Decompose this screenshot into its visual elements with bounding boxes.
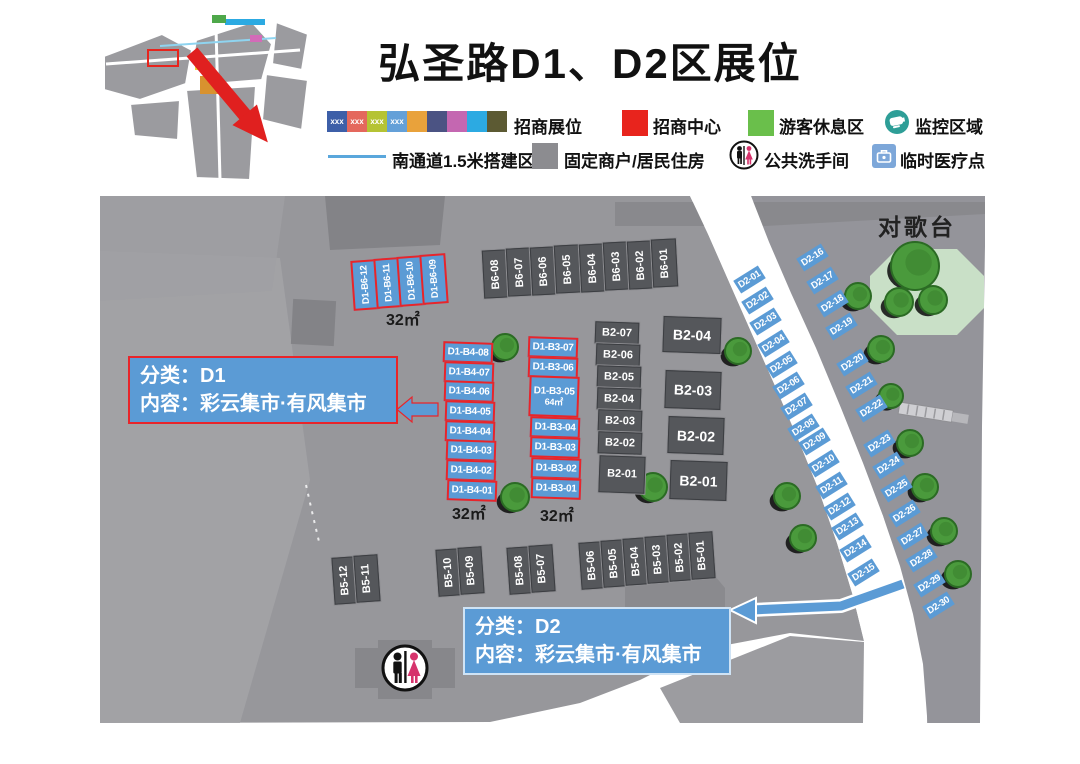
booth-label: D1-B3-02 <box>535 463 576 474</box>
booth-D2-21: D2-21 <box>845 371 878 399</box>
legend-booth-swatch: xxx <box>387 111 407 132</box>
class-box-d1: 分类：D1 内容：彩云集市·有风集市 <box>128 356 398 424</box>
booth-label: B6-02 <box>634 250 647 281</box>
page-title: 弘圣路D1、D2区展位 <box>320 30 860 91</box>
booth-D2-24: D2-24 <box>872 451 905 479</box>
booth-D2-26: D2-26 <box>888 499 921 527</box>
booth-label: D1-B3-05 <box>534 386 575 397</box>
booth-D2-27: D2-27 <box>896 522 929 550</box>
camera-icon <box>884 109 910 140</box>
booth-label: D2-07 <box>784 396 810 417</box>
booth-label: D2-17 <box>810 270 836 291</box>
booth-label: D2-18 <box>820 293 846 314</box>
legend-rest-label: 游客休息区 <box>779 113 864 138</box>
booth-label: D2-10 <box>811 453 837 474</box>
booth-B2-04: B2-04 <box>662 316 721 354</box>
booth-D2-25: D2-25 <box>880 474 913 502</box>
booth-label: B2-05 <box>604 371 634 383</box>
booth-B2-04: B2-04 <box>597 387 642 411</box>
booth-B2-05: B2-05 <box>597 365 642 389</box>
booth-label: B2-04 <box>673 327 712 342</box>
booth-B6-07: B6-07 <box>506 247 533 296</box>
booth-B2-02: B2-02 <box>598 431 643 455</box>
booth-label: D1-B3-03 <box>534 442 575 453</box>
booth-D1-B3-01: D1-B3-01 <box>531 477 582 500</box>
booth-label: D2-01 <box>737 269 763 290</box>
booth-label: D2-11 <box>819 475 844 496</box>
class-d2-line1: 分类：D2 <box>475 613 719 641</box>
booth-label: D2-24 <box>876 455 902 476</box>
booth-label: B5-01 <box>695 540 708 571</box>
booth-label: D1-B3-01 <box>535 483 576 494</box>
legend-center-label: 招商中心 <box>653 113 721 138</box>
booth-size-label: 64㎡ <box>545 397 563 407</box>
booth-label: D2-22 <box>859 398 885 419</box>
booth-B6-02: B6-02 <box>627 240 654 289</box>
booth-B2-02: B2-02 <box>667 416 724 455</box>
booth-label: D2-03 <box>753 311 779 332</box>
booth-label: D2-05 <box>769 354 795 375</box>
booth-label: D1-B4-08 <box>447 347 488 358</box>
booth-label: D2-04 <box>761 333 787 354</box>
legend-booth-swatch <box>487 111 507 132</box>
booth-label: B5-03 <box>651 544 664 575</box>
booth-B6-04: B6-04 <box>579 243 606 292</box>
booth-label: D2-23 <box>867 433 893 454</box>
booth-D2-16: D2-16 <box>796 243 829 271</box>
stage-label: 对歌台 <box>878 208 956 242</box>
booth-D1-B3-05: D1-B3-0564㎡ <box>528 375 579 418</box>
booth-label: B5-05 <box>607 548 620 579</box>
booth-label: D1-B6-10 <box>405 261 417 300</box>
booth-label: B5-09 <box>464 555 477 586</box>
class-d1-line1: 分类：D1 <box>140 362 386 390</box>
booth-label: D1-B6-12 <box>359 265 371 304</box>
booth-label: B6-07 <box>513 257 526 288</box>
booth-label: B6-04 <box>586 253 599 284</box>
area-size-label-d1b4: 32㎡ <box>452 500 486 524</box>
booth-D1-B4-01: D1-B4-01 <box>447 479 498 502</box>
booth-label: D2-26 <box>892 503 918 524</box>
booth-label: D2-30 <box>926 595 952 616</box>
booth-label: D2-28 <box>909 548 935 569</box>
booth-label: D2-16 <box>800 247 826 268</box>
booth-label: B6-03 <box>610 251 623 282</box>
booth-D2-30: D2-30 <box>922 591 955 619</box>
booth-map-poster: 弘圣路D1、D2区展位 xxxxxxxxxxxx 招商展位 招商中心 游客休息区… <box>0 0 1080 764</box>
medical-icon <box>872 144 896 173</box>
booth-label: B6-08 <box>489 259 502 290</box>
booth-label: D2-12 <box>827 496 853 517</box>
booth-color-swatches: xxxxxxxxxxxx <box>327 111 507 132</box>
booth-label: D1-B3-04 <box>534 422 575 433</box>
booth-label: B2-04 <box>604 393 634 405</box>
legend-booth-swatch: xxx <box>327 111 347 132</box>
legend-fixed-label: 固定商户/居民住房 <box>564 147 705 172</box>
class-box-d2: 分类：D2 内容：彩云集市·有风集市 <box>463 607 731 675</box>
booth-label: D2-15 <box>851 562 877 583</box>
legend-booth-swatch <box>467 111 487 132</box>
booth-label: D2-19 <box>829 316 855 337</box>
booth-D2-19: D2-19 <box>825 312 858 340</box>
booth-label: B5-06 <box>585 550 598 581</box>
booth-B6-01: B6-01 <box>651 238 678 287</box>
booth-B6-03: B6-03 <box>603 241 630 290</box>
booth-D2-20: D2-20 <box>836 348 869 376</box>
booth-B2-07: B2-07 <box>595 321 640 345</box>
booth-D2-17: D2-17 <box>806 266 839 294</box>
legend-channel-line <box>328 155 386 158</box>
booth-B5-09: B5-09 <box>457 546 484 595</box>
booth-label: D2-25 <box>884 478 910 499</box>
booth-B2-06: B2-06 <box>596 343 641 367</box>
booth-B5-01: B5-01 <box>688 531 715 580</box>
booth-label: B2-03 <box>605 415 635 427</box>
booth-label: B2-06 <box>603 349 633 361</box>
legend-monitor-label: 监控区域 <box>915 113 983 138</box>
booth-label: D1-B4-05 <box>449 406 490 417</box>
booth-label: B5-11 <box>360 563 373 593</box>
booth-label: D1-B4-02 <box>450 465 491 476</box>
overview-minimap <box>100 8 312 190</box>
booth-label: D2-02 <box>745 290 771 311</box>
booth-B5-07: B5-07 <box>528 544 555 593</box>
booth-label: D1-B6-11 <box>382 264 394 303</box>
legend-medical-label: 临时医疗点 <box>900 147 985 172</box>
booth-D1-B6-09: D1-B6-09 <box>419 253 448 305</box>
booth-label: D1-B4-01 <box>451 485 492 496</box>
booth-B6-06: B6-06 <box>530 246 557 295</box>
booth-B5-11: B5-11 <box>353 554 380 603</box>
booth-label: B5-12 <box>338 565 351 596</box>
legend-booth-swatch <box>427 111 447 132</box>
booth-D2-29: D2-29 <box>913 569 946 597</box>
booth-label: B5-04 <box>629 546 642 577</box>
booth-label: B5-10 <box>442 557 455 588</box>
booth-B2-01: B2-01 <box>598 455 645 494</box>
class-d2-line2: 内容：彩云集市·有风集市 <box>475 641 719 669</box>
booth-D2-14: D2-14 <box>839 534 872 562</box>
legend-booth-swatch: xxx <box>367 111 387 132</box>
booth-D2-15: D2-15 <box>847 558 880 586</box>
booth-D2-23: D2-23 <box>863 429 896 457</box>
booth-B6-08: B6-08 <box>482 249 509 298</box>
site-map: D1-B6-12D1-B6-11D1-B6-10D1-B6-09B6-08B6-… <box>100 196 985 764</box>
booth-label: B2-02 <box>677 428 716 443</box>
booth-label: B2-03 <box>674 382 713 397</box>
booth-label: D2-21 <box>849 375 875 396</box>
legend-wc-label: 公共洗手间 <box>764 147 849 172</box>
booth-B6-05: B6-05 <box>554 244 581 293</box>
booth-label: B6-06 <box>537 256 550 287</box>
booth-D2-28: D2-28 <box>905 544 938 572</box>
class-d1-line2: 内容：彩云集市·有风集市 <box>140 390 386 418</box>
booth-label: D2-27 <box>900 526 926 547</box>
booth-label: B5-08 <box>513 555 526 586</box>
booth-label: D2-20 <box>840 352 866 373</box>
legend-booth-swatch <box>407 111 427 132</box>
booth-D2-18: D2-18 <box>816 289 849 317</box>
booth-label: B2-07 <box>602 327 632 339</box>
booth-label: B6-05 <box>561 254 574 285</box>
legend-fixed-swatch <box>532 143 558 169</box>
legend-booth-swatch <box>447 111 467 132</box>
legend-channel-label: 南通道1.5米搭建区 <box>392 147 535 172</box>
legend-booth-swatch: xxx <box>347 111 367 132</box>
booth-label: D2-29 <box>917 573 943 594</box>
booth-label: B5-02 <box>673 542 686 573</box>
legend-rest-swatch <box>748 110 774 136</box>
booth-D2-22: D2-22 <box>855 394 888 422</box>
legend-center-swatch <box>622 110 648 136</box>
area-size-label-d1b6: 32㎡ <box>386 306 420 330</box>
restroom-icon <box>729 140 759 175</box>
booth-B2-01: B2-01 <box>669 460 727 501</box>
booth-B2-03: B2-03 <box>664 370 721 410</box>
booth-label: D2-14 <box>843 538 869 559</box>
booth-label: D1-B4-07 <box>448 367 489 378</box>
booth-label: D1-B4-06 <box>448 386 489 397</box>
booth-label: D2-06 <box>776 375 802 396</box>
booth-label: B2-01 <box>679 473 718 488</box>
booth-label: D1-B6-09 <box>428 259 440 298</box>
booth-label: B2-01 <box>607 468 637 480</box>
booth-B2-03: B2-03 <box>598 409 643 433</box>
booth-label: D1-B3-06 <box>532 362 573 373</box>
area-size-label-d1b3: 32㎡ <box>540 502 574 526</box>
booth-D1-B3-03: D1-B3-03 <box>530 436 581 459</box>
booth-label: B2-02 <box>605 437 635 449</box>
booth-label: D1-B4-03 <box>450 445 491 456</box>
booth-label: D1-B3-07 <box>532 342 573 353</box>
legend-booths-label: 招商展位 <box>514 113 582 138</box>
booth-label: D2-13 <box>835 516 861 537</box>
booth-label: D1-B4-04 <box>449 426 490 437</box>
booth-label: B5-07 <box>535 553 548 584</box>
booth-label: B6-01 <box>658 248 671 279</box>
